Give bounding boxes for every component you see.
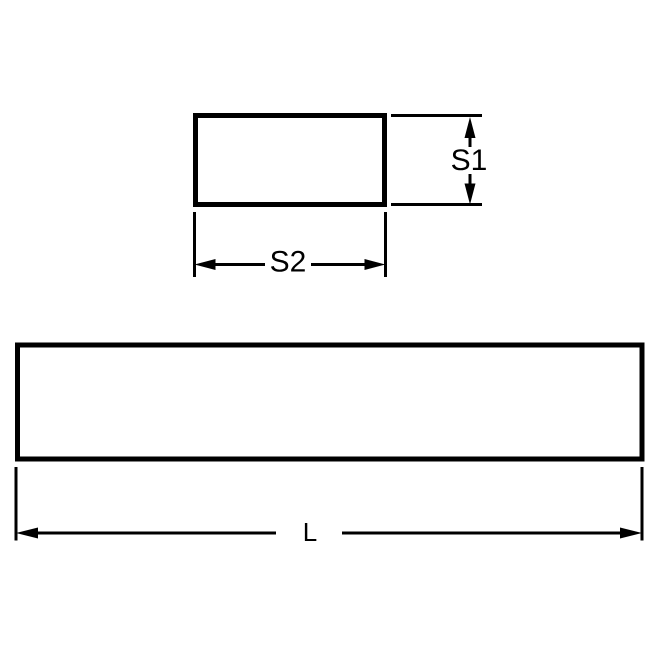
s1-dimension: S1 [391, 116, 487, 205]
s2-dimension: S2 [195, 212, 386, 279]
s2-label: S2 [270, 246, 307, 279]
cross-section-view: S1 S2 [195, 116, 488, 279]
l-arrow-left-icon [16, 528, 38, 539]
s1-arrow-up-icon [465, 117, 476, 138]
side-view-outline [18, 345, 643, 459]
s2-arrow-left-icon [195, 259, 216, 270]
s1-arrow-down-icon [465, 184, 476, 205]
technical-drawing-canvas: S1 S2 L [0, 0, 670, 670]
dimension-drawing: S1 S2 L [0, 0, 670, 670]
cross-section-outline [196, 116, 385, 205]
l-label: L [303, 517, 317, 547]
s2-arrow-right-icon [365, 259, 386, 270]
s1-label: S1 [451, 144, 488, 177]
l-dimension: L [16, 467, 642, 547]
l-arrow-right-icon [620, 528, 642, 539]
side-view: L [16, 345, 642, 547]
